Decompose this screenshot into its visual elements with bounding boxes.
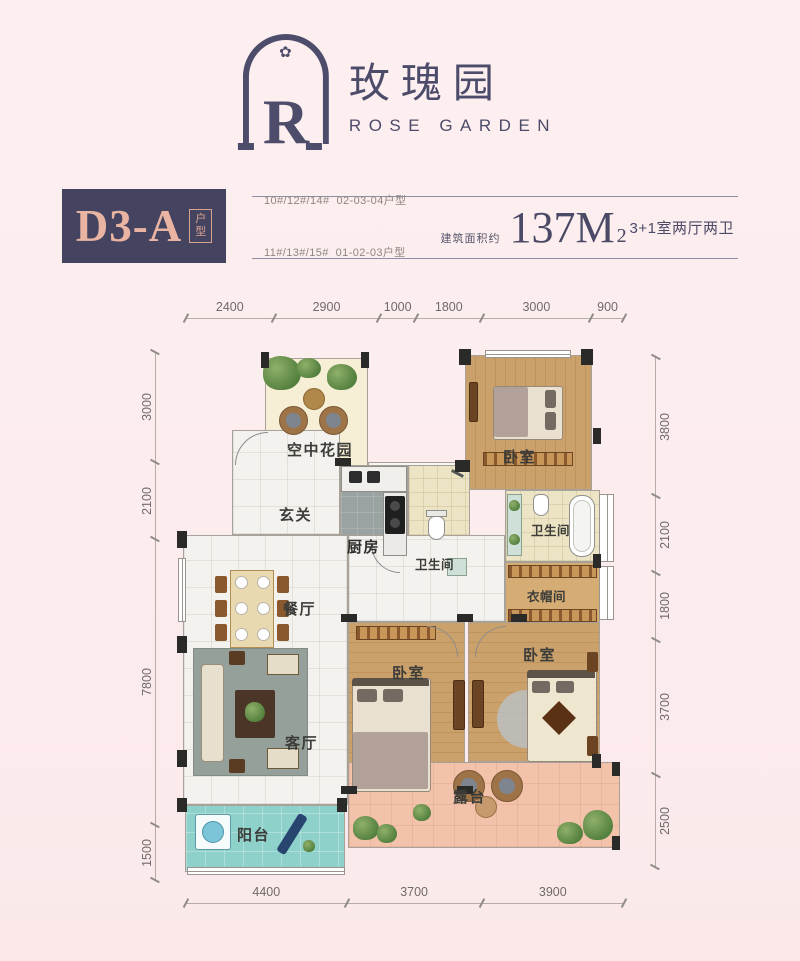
wall-pier: [361, 352, 369, 368]
building-numbers: 10#/12#/14# 02-03-04户型 11#/13#/15# 01-02…: [264, 159, 407, 295]
toilet: [533, 494, 549, 516]
wall-pier: [593, 554, 601, 568]
area-value: 137M: [510, 206, 615, 250]
label-hallway: 玄关: [279, 504, 312, 525]
bay-window-bath: [599, 494, 614, 562]
wall-pier: [593, 428, 601, 444]
label-bedroom-top: 卧室: [503, 446, 536, 467]
label-bathroom-b: 卫生间: [531, 520, 570, 539]
dim-right-1: 3800: [658, 413, 672, 441]
floral-ornament-icon: ✿: [243, 43, 329, 61]
kitchen-sink: [367, 471, 380, 483]
wardrobe: [356, 626, 436, 640]
plant: [303, 840, 315, 852]
brand-name-english: ROSE GARDEN: [349, 116, 557, 136]
plant: [297, 358, 321, 378]
window-bedroom-top: [485, 350, 571, 358]
bay-window-cloak: [599, 566, 614, 620]
cabinet: [469, 382, 478, 422]
wall-pier: [177, 531, 187, 548]
dim-right-5: 2500: [658, 807, 672, 835]
dim-right-4: 3700: [658, 693, 672, 721]
unit-tag: 户型: [189, 209, 212, 243]
dining-chair: [215, 576, 227, 593]
plant: [509, 534, 520, 545]
rose-garden-arch-emblem: ✿ R: [243, 34, 329, 150]
label-living: 客厅: [285, 732, 318, 753]
wall-pier: [341, 786, 357, 794]
dining-chair: [215, 600, 227, 617]
dining-chair: [277, 576, 289, 593]
dimension-line-right: 3800 2100 1800 3700 2500: [655, 357, 672, 867]
wall-pier: [341, 614, 357, 622]
dim-bottom-3: 3900: [482, 885, 624, 899]
dim-right-3: 1800: [658, 593, 672, 621]
dim-top-1: 2400: [186, 300, 274, 314]
label-bedroom-mid: 卧室: [392, 662, 425, 683]
pillow: [383, 689, 403, 702]
dim-left-3: 7800: [140, 668, 154, 696]
dim-top-2: 2900: [274, 300, 380, 314]
emblem-letter: R: [243, 90, 329, 154]
dining-chair: [215, 624, 227, 641]
nightstand: [587, 652, 598, 672]
plate: [257, 628, 270, 641]
dim-top-4: 1800: [416, 300, 482, 314]
toilet-tank: [426, 510, 447, 517]
plant: [353, 816, 379, 840]
side-table: [229, 759, 245, 773]
wall-pier: [177, 750, 187, 767]
plate: [235, 602, 248, 615]
pillow: [545, 412, 556, 430]
tv-console: [267, 654, 299, 675]
plant: [377, 824, 397, 843]
dim-bottom-1: 4400: [186, 885, 347, 899]
bathtub-basin: [573, 500, 591, 552]
plant: [327, 364, 357, 390]
side-table: [229, 651, 245, 665]
burner: [390, 501, 400, 511]
dimension-line-left: 3000 2100 7800 1500: [138, 352, 155, 880]
wall-pier: [459, 349, 471, 365]
pillow: [532, 681, 550, 693]
garden-table: [303, 388, 325, 410]
dim-left-1: 3000: [140, 393, 154, 421]
wardrobe-tall: [472, 680, 484, 728]
wall-pier: [457, 614, 473, 622]
toilet: [428, 516, 445, 540]
unit-code-box: D3-A 户型: [62, 189, 226, 263]
unit-code: D3-A: [76, 204, 182, 249]
label-terrace: 露台: [453, 786, 486, 807]
wall-pier: [592, 754, 601, 768]
building-line-1: 10#/12#/14# 02-03-04户型: [264, 193, 407, 210]
dim-left-4: 1500: [140, 839, 154, 867]
sofa: [201, 664, 224, 762]
dim-top-6: 900: [591, 300, 624, 314]
dim-left-2: 2100: [140, 487, 154, 515]
dim-top-3: 1000: [379, 300, 416, 314]
label-balcony: 阳台: [237, 824, 270, 845]
nightstand: [587, 736, 598, 756]
wall-pier: [177, 798, 187, 812]
pillow: [545, 390, 556, 408]
layout-description: 3+1室两厅两卫: [630, 217, 734, 238]
plate: [257, 602, 270, 615]
area-info: 建筑面积约 137M 2: [441, 206, 627, 250]
dimension-line-top: 2400 2900 1000 1800 3000 900: [186, 302, 624, 318]
wall-pier: [612, 762, 620, 776]
brand-name-chinese: 玫瑰园: [349, 49, 557, 109]
garden-chair: [279, 406, 308, 435]
kitchen-sink: [349, 471, 362, 483]
pillow: [357, 689, 377, 702]
pillow: [556, 681, 574, 693]
dim-bottom-2: 3700: [347, 885, 482, 899]
brand-names: 玫瑰园 ROSE GARDEN: [349, 49, 557, 136]
wall-pier: [581, 349, 593, 365]
wall-pier: [337, 798, 347, 812]
plant: [583, 810, 613, 840]
label-dining: 餐厅: [283, 598, 316, 619]
label-bathroom-a: 卫生间: [415, 554, 454, 573]
blanket: [494, 387, 528, 437]
wall-pier: [261, 352, 269, 368]
plant: [557, 822, 583, 844]
window-living: [178, 558, 186, 622]
wall-pier: [511, 614, 527, 622]
label-kitchen: 厨房: [347, 536, 380, 557]
wardrobe-tall: [453, 680, 465, 730]
wardrobe-rack: [508, 565, 597, 578]
terrace-chair: [491, 770, 523, 802]
building-line-2: 11#/13#/15# 01-02-03户型: [264, 245, 407, 262]
balcony-railing: [187, 867, 345, 875]
label-bedroom-right: 卧室: [523, 644, 556, 665]
dim-right-2: 2100: [658, 521, 672, 549]
wall-pier: [455, 460, 470, 472]
wall-pier: [177, 636, 187, 653]
unit-info-strip: 10#/12#/14# 02-03-04户型 11#/13#/15# 01-02…: [252, 196, 738, 259]
label-sky-garden: 空中花园: [287, 439, 353, 460]
area-exponent: 2: [617, 226, 627, 246]
headboard: [527, 670, 595, 678]
plate: [235, 628, 248, 641]
blanket: [353, 732, 428, 789]
garden-chair: [319, 406, 348, 435]
dining-chair: [277, 624, 289, 641]
plate: [235, 576, 248, 589]
brand-logo: ✿ R 玫瑰园 ROSE GARDEN: [243, 34, 557, 150]
floor-plan: 空中花园 玄关 厨房 卫生间 卫生间 卧室 衣帽间 餐厅 客厅 卧室 卧室 露台…: [175, 348, 637, 883]
dimension-line-bottom: 4400 3700 3900: [186, 887, 624, 903]
burner: [390, 518, 400, 528]
plant: [413, 804, 431, 821]
plate: [257, 576, 270, 589]
plant: [509, 500, 520, 511]
washing-machine-drum: [202, 821, 224, 843]
dim-top-5: 3000: [482, 300, 592, 314]
label-cloakroom: 衣帽间: [527, 586, 566, 605]
area-label: 建筑面积约: [441, 230, 501, 246]
wall-pier: [612, 836, 620, 850]
plant: [245, 702, 265, 722]
